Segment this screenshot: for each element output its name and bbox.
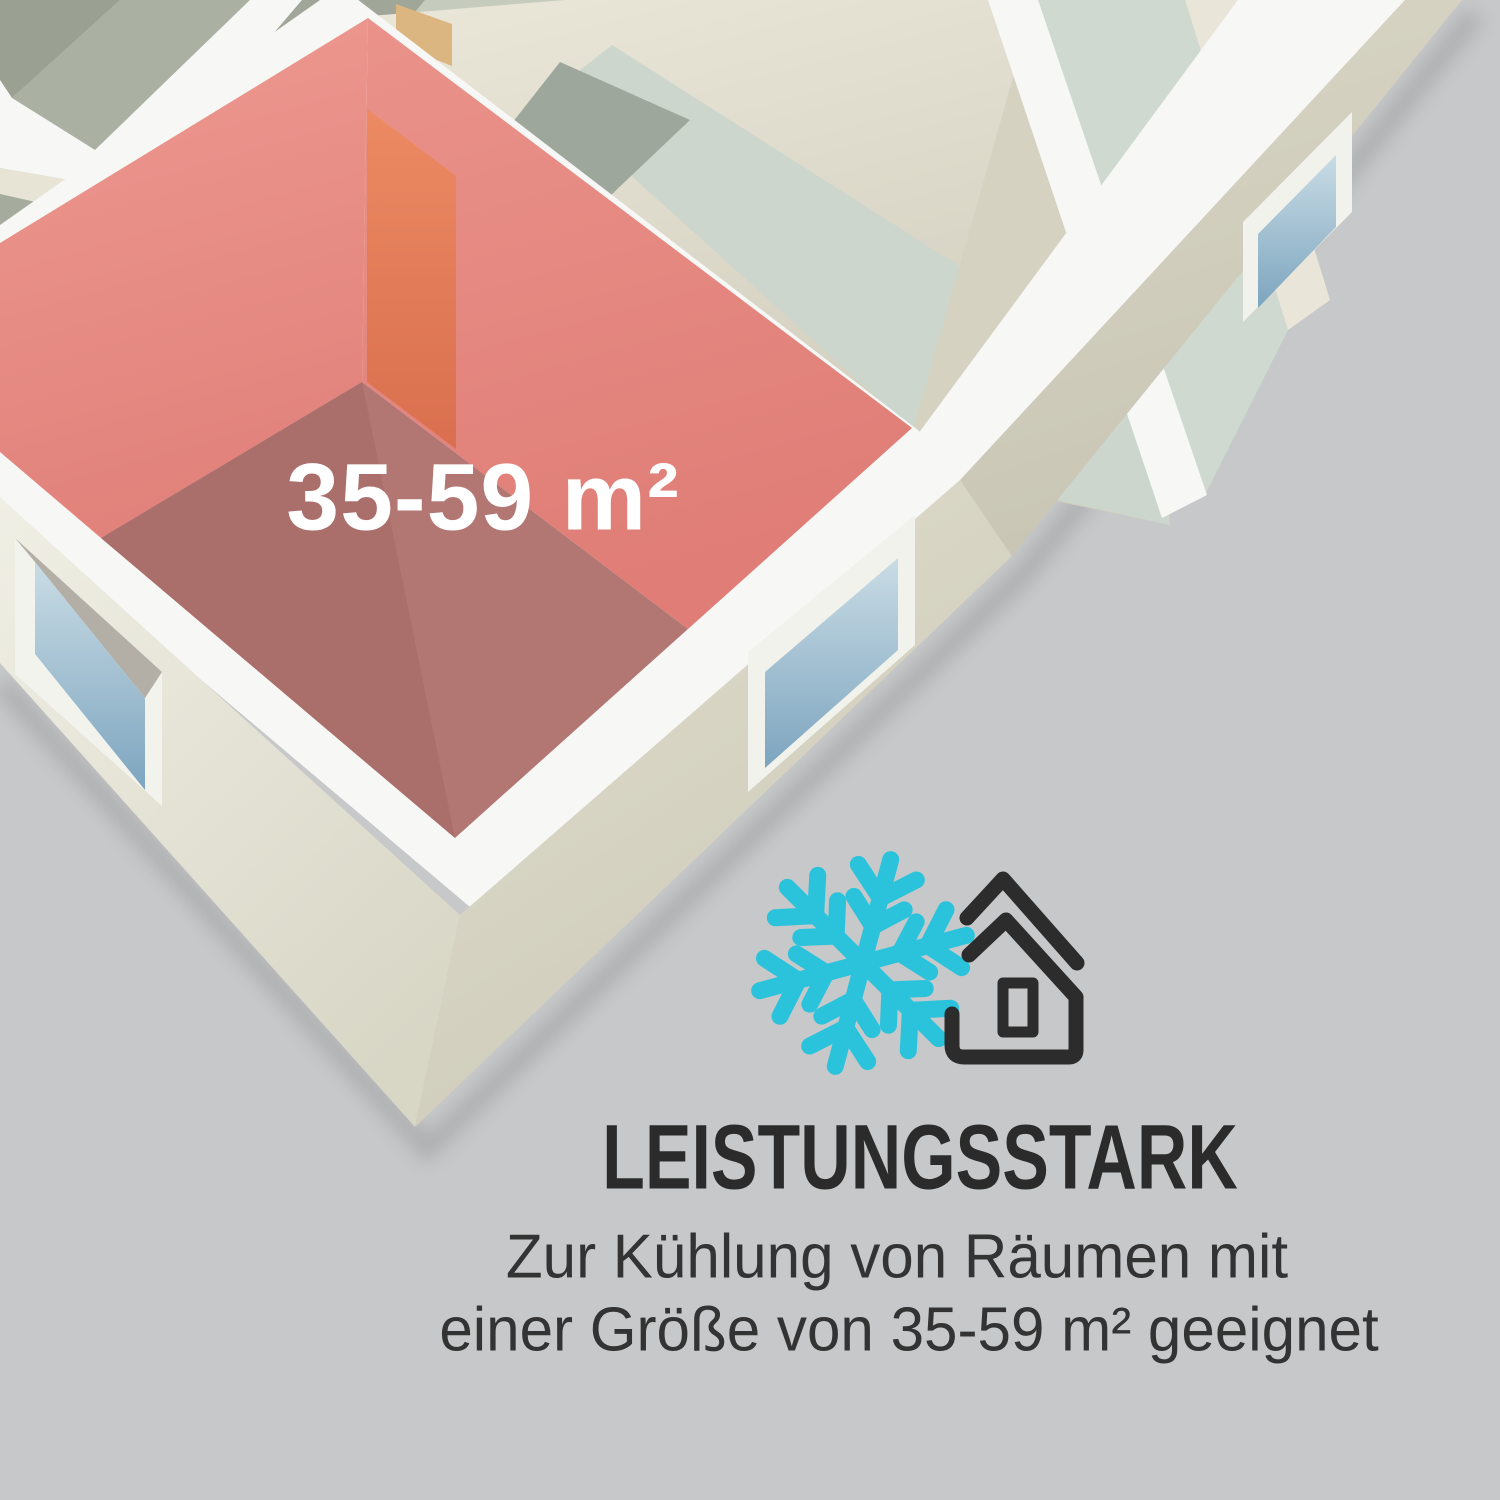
- product-infographic: 35-59 m² LEISTUNGSSTARK Zur Kühlung von …: [0, 0, 1500, 1500]
- subtitle-line2: einer Größe von 35-59 m² geeignet: [439, 1295, 1378, 1366]
- heading: LEISTUNGSSTARK: [602, 1106, 1238, 1211]
- subtitle-line1: Zur Kühlung von Räumen mit: [506, 1222, 1288, 1293]
- room-size-label: 35-59 m²: [286, 444, 679, 553]
